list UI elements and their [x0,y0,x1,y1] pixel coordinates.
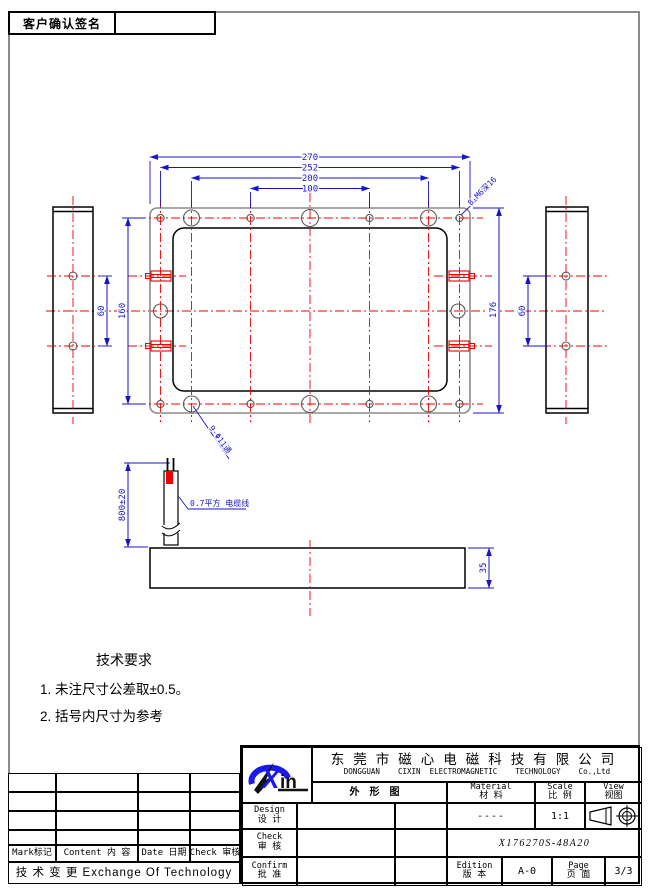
view-header: View 视图 [585,782,642,803]
leader-screws: 8-M6深16 [461,175,499,215]
dim-160-text: 160 [118,303,128,319]
check-date-field[interactable] [395,829,447,857]
rev-empty-cell[interactable] [56,792,138,811]
rev-empty-cell[interactable] [56,773,138,792]
check-label-cn: 审 核 [258,843,281,853]
company-name-en: DONGGUAN CIXIN ELECTROMAGNETIC TECHNOLOG… [344,768,610,776]
cable-leader-text: 0.7平方 电缆线 [190,498,249,508]
confirm-date-field[interactable] [395,857,447,886]
projection-view-symbol [585,803,642,829]
leader-holes: 9-Φ11通 [193,406,234,459]
scale-header: Scale 比 例 [535,782,585,803]
drawing-sheet: 客户确认签名 [0,0,654,893]
dim-800-text: 800±20 [118,489,128,522]
dim-100-text: 100 [302,185,318,195]
rev-empty-cell[interactable] [138,830,190,845]
confirm-label-cn: 批 准 [258,871,281,881]
main-view [128,193,492,426]
part-number: X176270S-48A20 [447,829,642,857]
rev-col-mark: Mark标记 [8,845,56,862]
rev-col-content: Content 内 容 [56,845,138,862]
material-value: ---- [447,803,535,829]
tech-req-item-2: 2. 括号内尺寸为参考 [40,705,300,725]
scale-value: 1:1 [535,803,585,829]
svg-text:X: X [260,764,281,794]
design-date-field[interactable] [395,803,447,829]
dim-35-text: 35 [479,563,489,574]
scale-header-cn: 比 例 [548,792,571,802]
rev-col-check: Check 审核 [190,845,240,862]
rev-empty-cell[interactable] [56,830,138,845]
technical-requirements: 技术要求 1. 未注尺寸公差取±0.5。 2. 括号内尺寸为参考 [40,650,300,732]
left-side-view [47,196,100,424]
tech-req-title: 技术要求 [96,650,300,670]
check-name-field[interactable] [297,829,395,857]
rev-empty-cell[interactable] [190,773,240,792]
cable-red-sleeve [166,471,173,484]
confirm-name-field[interactable] [297,857,395,886]
edition-label: Edition 版 本 [447,857,502,886]
tech-req-item-1: 1. 未注尺寸公差取±0.5。 [40,678,300,698]
dim-252-text: 252 [302,164,318,174]
rev-empty-cell[interactable] [8,792,56,811]
dim-270-text: 270 [302,153,318,163]
rev-footer: 技 术 变 更 Exchange Of Technology [8,862,240,884]
rev-empty-cell[interactable] [138,811,190,830]
dim-176: 176 [473,208,504,413]
company-name-cn: 东莞市磁心电磁科技有限公司 [331,753,624,768]
design-name-field[interactable] [297,803,395,829]
leader-screws-text: 8-M6深16 [466,175,499,208]
view-header-cn: 视图 [604,792,622,802]
rev-empty-cell[interactable] [8,773,56,792]
check-label: Check 审 核 [242,829,297,857]
revision-table: Mark标记 Content 内 容 Date 日期 Check 审核 技 术 … [8,773,240,884]
company-name: 东莞市磁心电磁科技有限公司 DONGGUAN CIXIN ELECTROMAGN… [312,747,642,782]
company-logo: X in [242,747,312,803]
rev-empty-cell[interactable] [138,792,190,811]
cable-detail: 800±20 0.7平方 电缆线 [118,458,249,547]
bottom-view: 35 [150,540,494,616]
material-header-cn: 材 料 [479,792,502,802]
dim-176-text: 176 [489,302,499,318]
title-block: X in 东莞市磁心电磁科技有限公司 DONGGUAN CIXIN ELECTR… [240,745,640,884]
rev-empty-cell[interactable] [8,811,56,830]
confirm-label: Confirm 批 准 [242,857,297,886]
rev-empty-cell[interactable] [56,811,138,830]
first-angle-projection-icon [587,804,640,828]
dim-60-left-text: 60 [97,306,107,317]
material-header: Material 材 料 [447,782,535,803]
page-value: 3/3 [605,857,642,886]
rev-empty-cell[interactable] [190,830,240,845]
rev-empty-cell[interactable] [8,830,56,845]
design-label: Design 设 计 [242,803,297,829]
rev-empty-cell[interactable] [190,792,240,811]
rev-empty-cell[interactable] [138,773,190,792]
right-side-view [542,196,608,424]
dim-60-right-text: 60 [518,306,528,317]
page-label: Page 页 面 [552,857,605,886]
rev-empty-cell[interactable] [190,811,240,830]
rev-col-date: Date 日期 [138,845,190,862]
dim-200-text: 200 [302,174,318,184]
leader-holes-text: 9-Φ11通 [207,423,234,455]
edition-label-cn: 版 本 [463,871,486,881]
drawing-name: 外形图 [312,782,447,803]
page-label-cn: 页 面 [567,871,590,881]
edition-value: A-0 [502,857,552,886]
cixin-logo-icon: X in [244,750,310,800]
design-label-cn: 设 计 [258,816,281,826]
